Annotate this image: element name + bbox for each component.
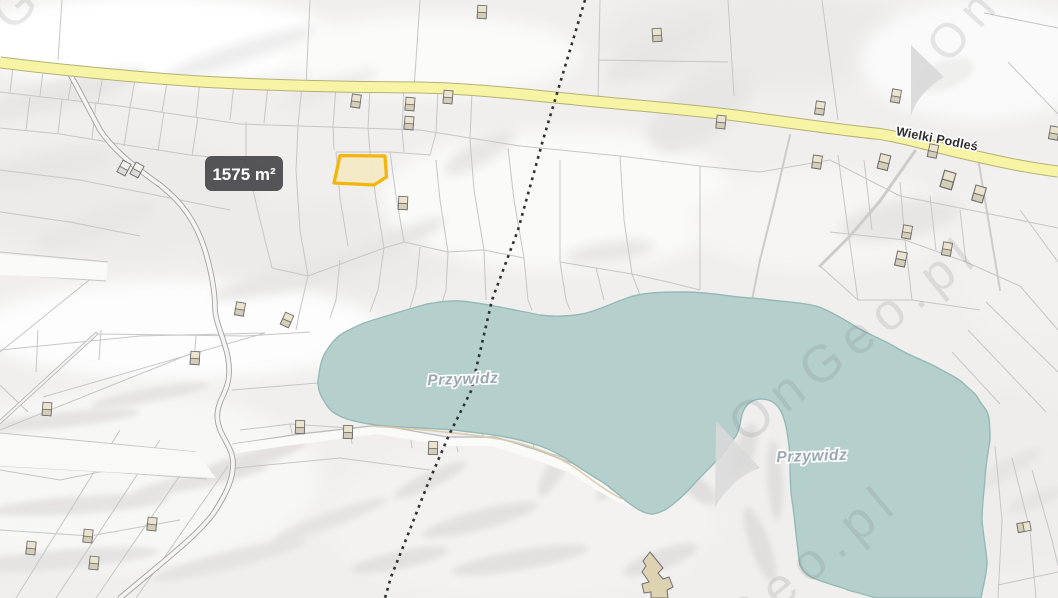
svg-text:1575 m²: 1575 m² [212, 165, 276, 184]
svg-text:Przywidz: Przywidz [776, 447, 848, 466]
svg-text:Przywidz: Przywidz [427, 370, 499, 389]
